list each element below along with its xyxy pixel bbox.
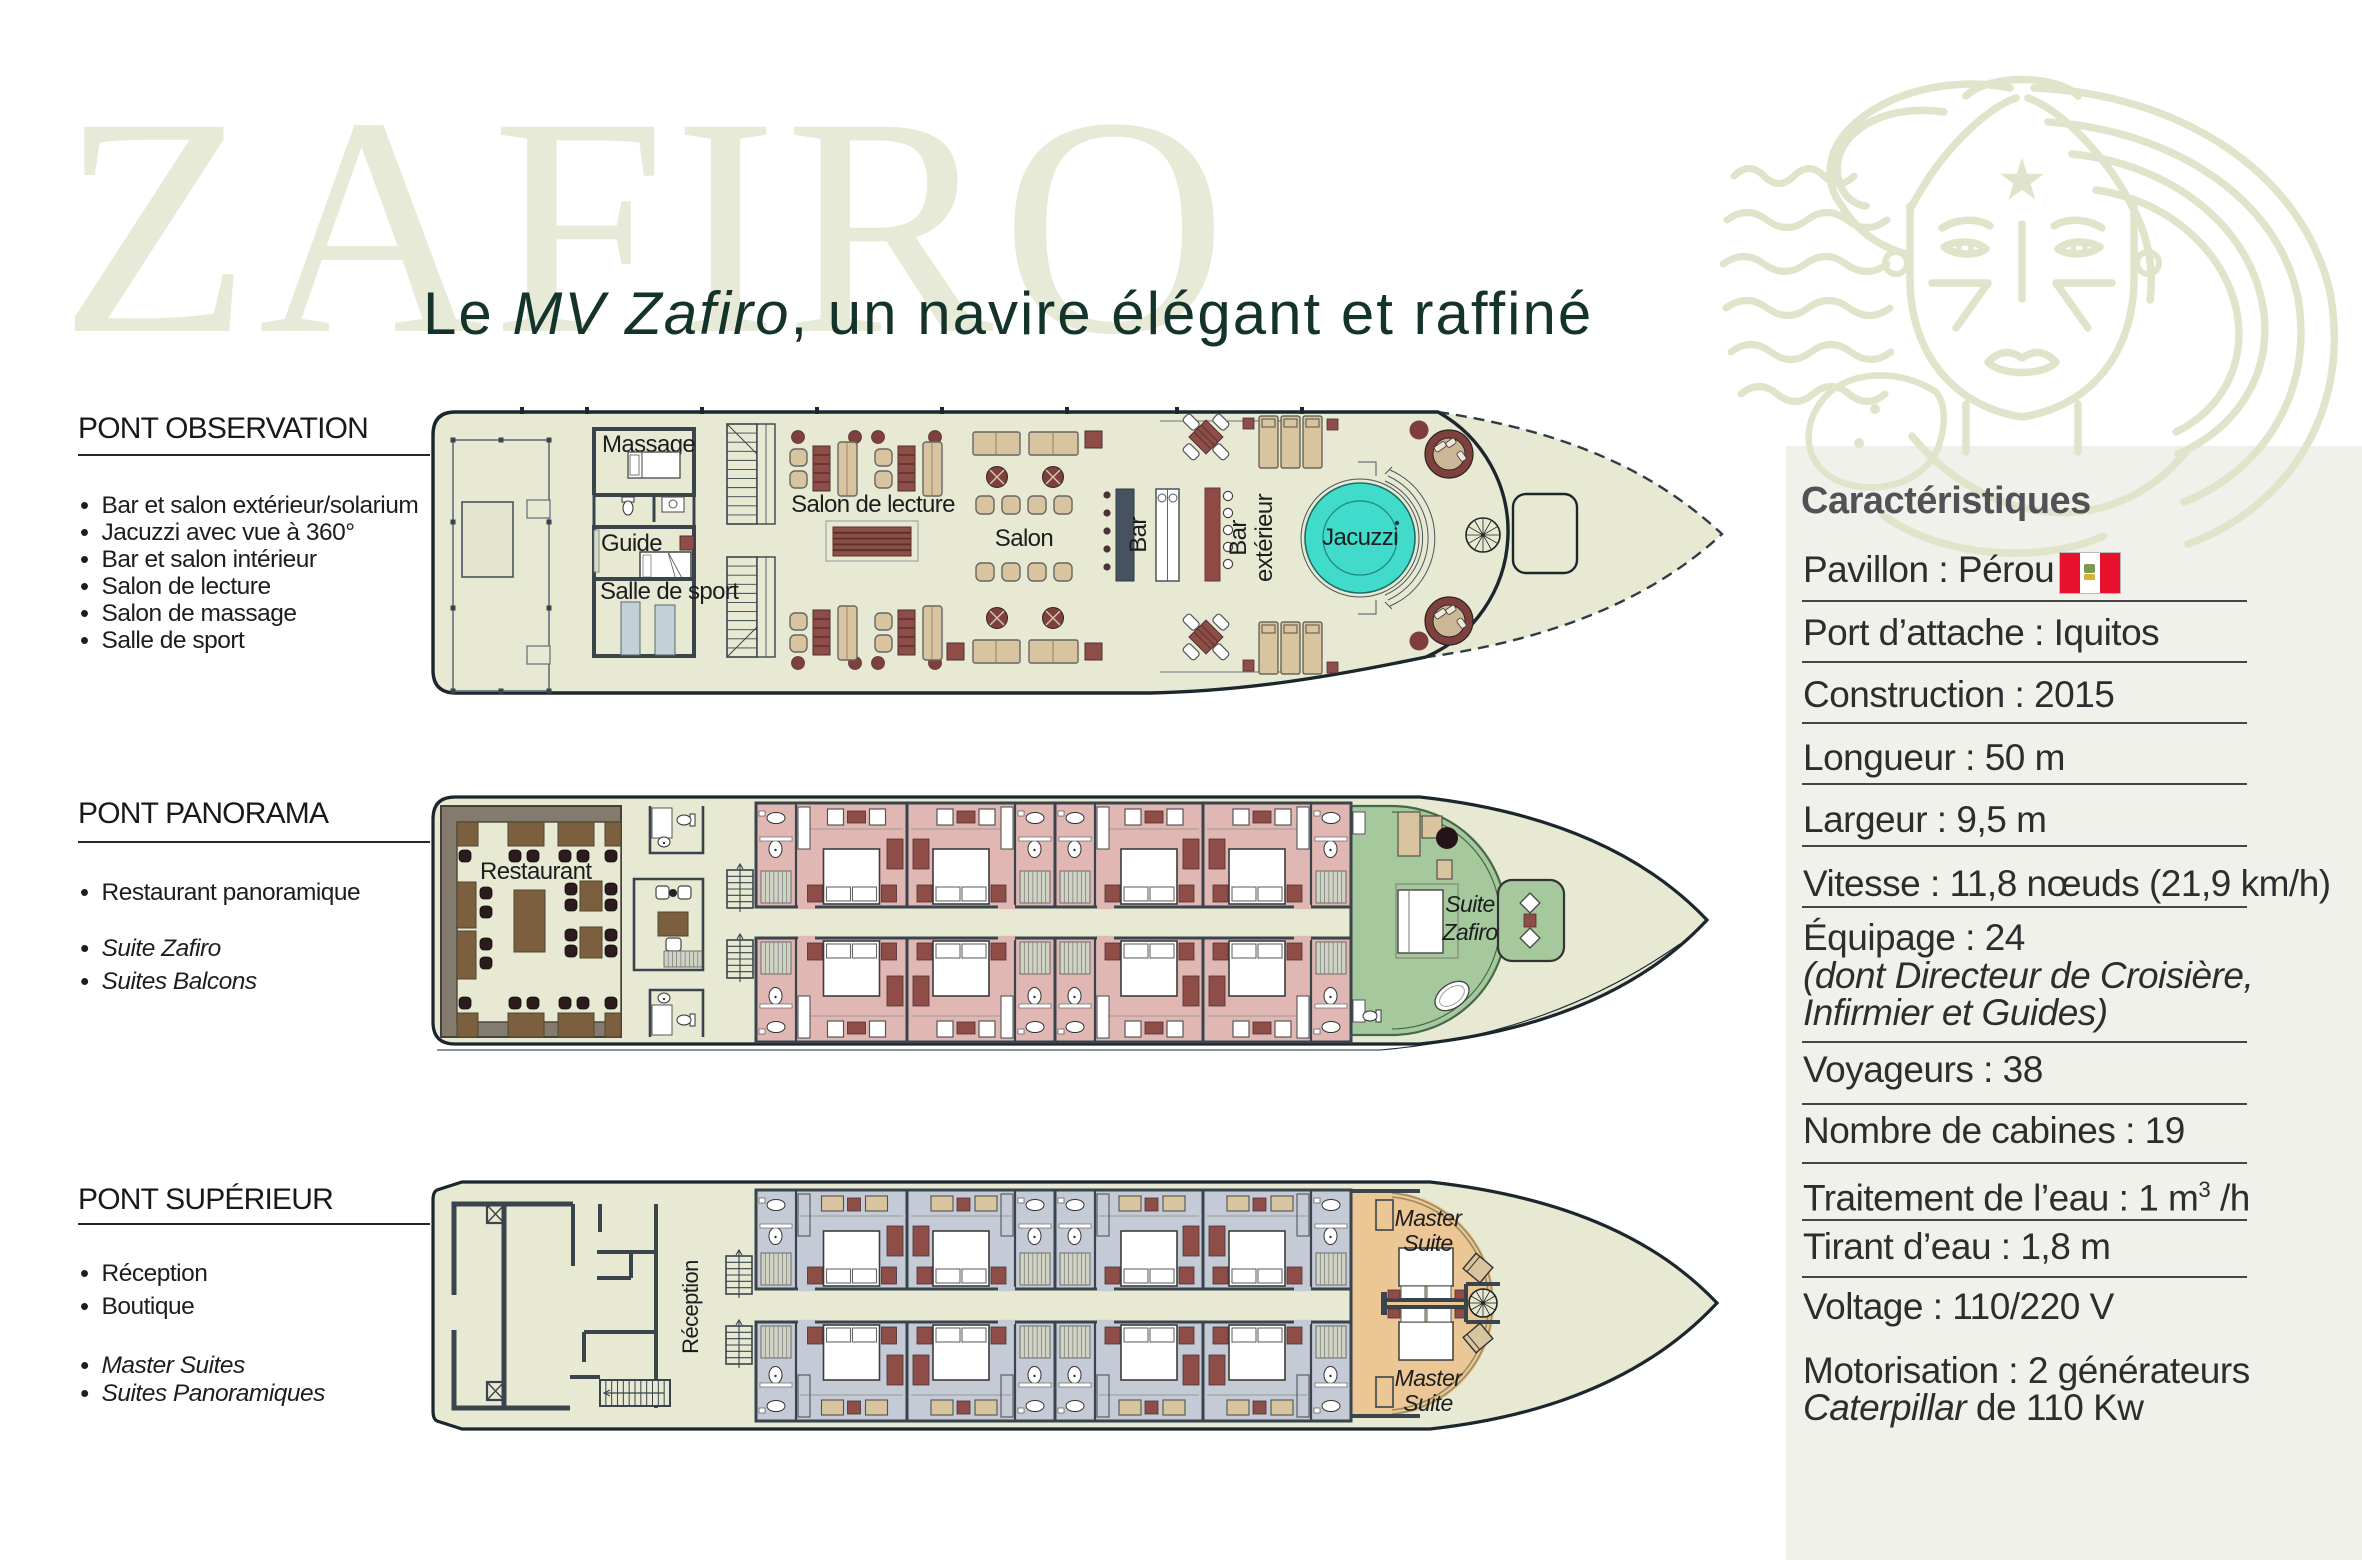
svg-text:Restaurant: Restaurant xyxy=(480,858,592,885)
svg-text:Bar: Bar xyxy=(1225,520,1252,556)
svg-text:Zafiro: Zafiro xyxy=(1441,919,1498,945)
svg-text:Master: Master xyxy=(1395,1365,1464,1391)
svg-text:extérieur: extérieur xyxy=(1251,493,1278,582)
svg-text:Master: Master xyxy=(1395,1205,1464,1231)
svg-text:Réception: Réception xyxy=(678,1260,703,1354)
svg-text:Suite: Suite xyxy=(1403,1390,1452,1416)
svg-text:Suite: Suite xyxy=(1403,1230,1452,1256)
svg-text:Salon: Salon xyxy=(995,525,1053,552)
svg-text:Jacuzzi: Jacuzzi xyxy=(1322,524,1398,551)
svg-text:Salle de sport: Salle de sport xyxy=(600,578,739,605)
svg-text:Salon de lecture: Salon de lecture xyxy=(791,491,955,518)
svg-text:Bar: Bar xyxy=(1125,517,1152,553)
svg-text:Suite: Suite xyxy=(1445,891,1494,917)
